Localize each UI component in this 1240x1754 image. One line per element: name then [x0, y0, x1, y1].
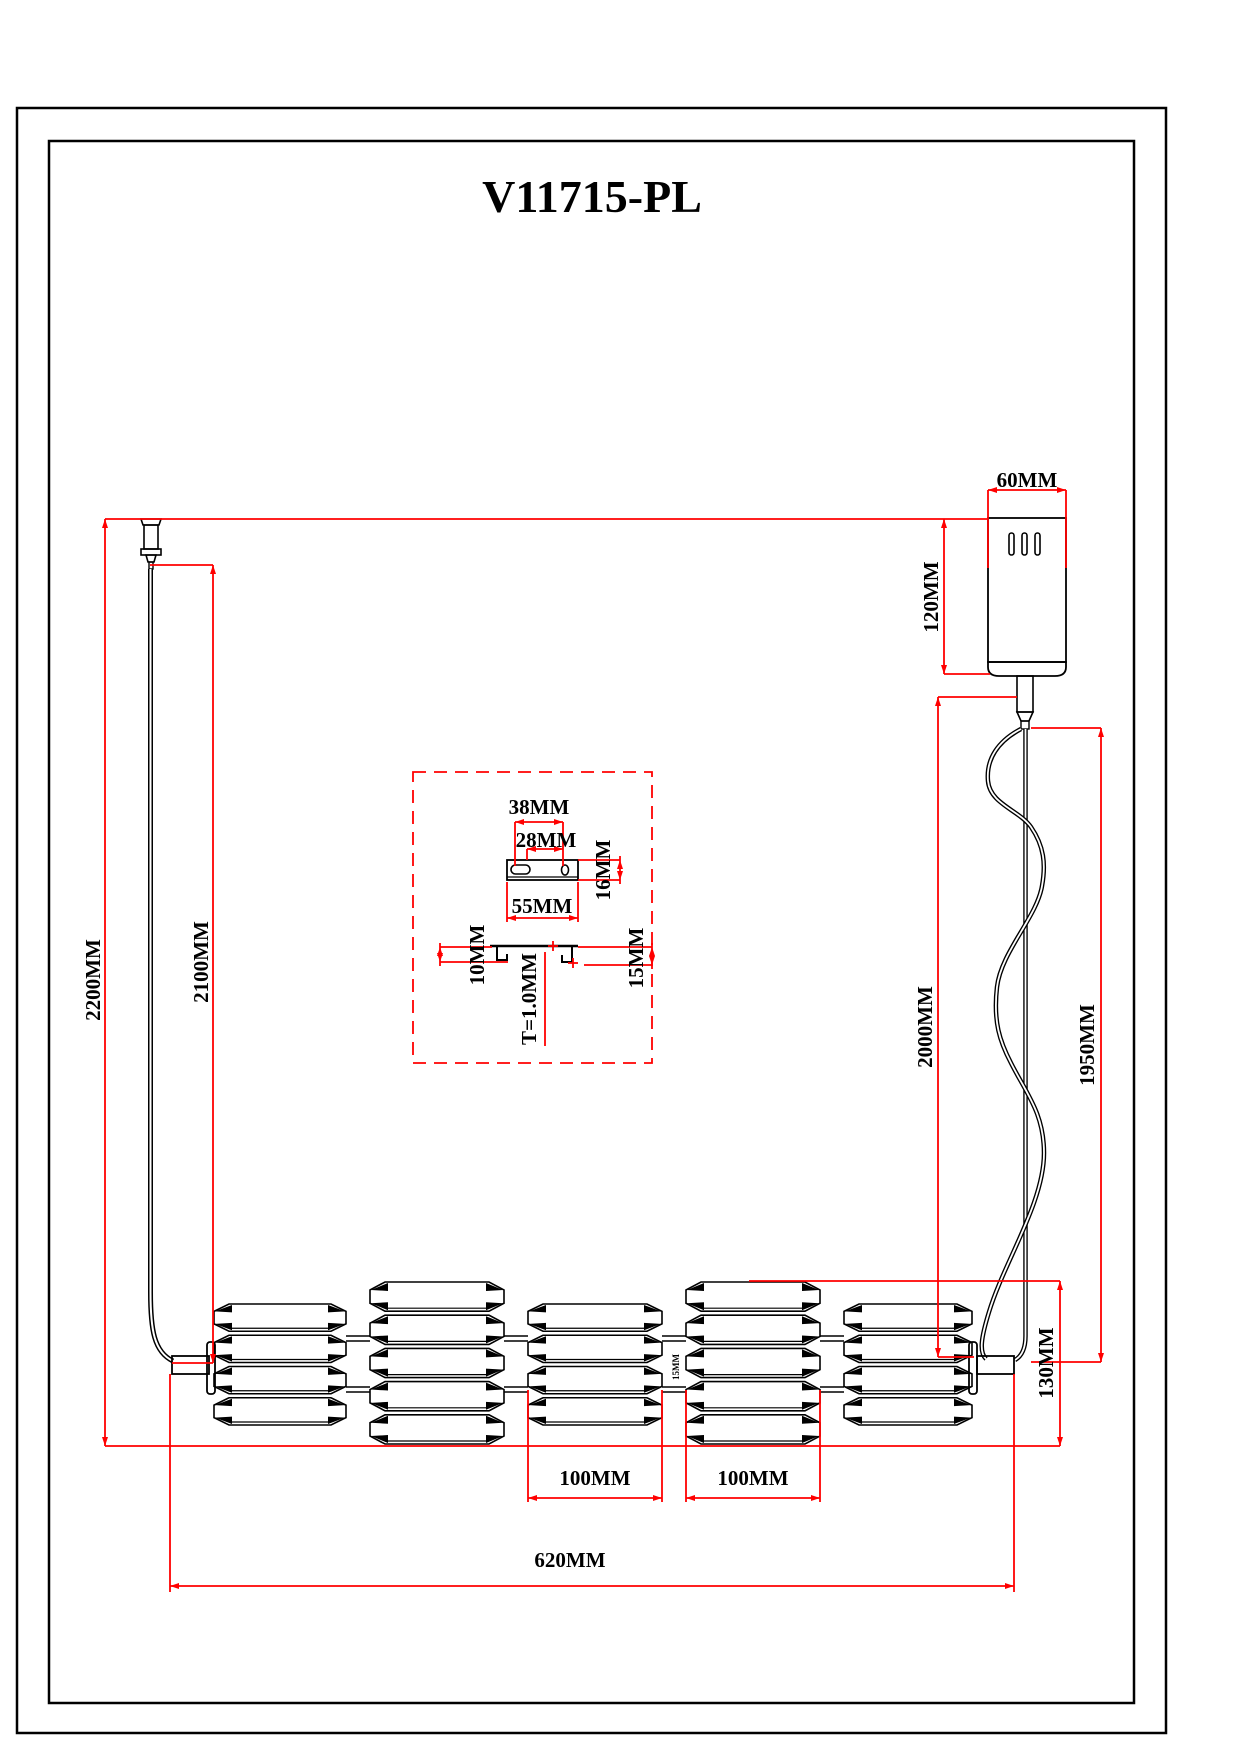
dimension-arrow — [554, 819, 563, 825]
fixture-black-geometry — [141, 518, 1066, 1444]
dimension-arrow — [437, 953, 443, 962]
canopy-vent-slot — [1035, 533, 1040, 555]
shade-facet — [844, 1367, 972, 1394]
technical-drawing: V11715-PL — [0, 0, 1240, 1754]
drawing-title: V11715-PL — [482, 171, 702, 222]
dim-shade-gap: 15MM — [671, 1354, 681, 1380]
dimension-arrow — [686, 1495, 695, 1501]
canopy-vent-slot — [1022, 533, 1027, 555]
dimension-arrow — [811, 1495, 820, 1501]
dimension-arrow — [941, 519, 947, 528]
shade-facet — [370, 1415, 504, 1444]
canopy-stem — [1017, 676, 1033, 712]
shade-facet — [528, 1304, 662, 1331]
dimension-arrow — [1057, 487, 1066, 493]
dim-bracket-hole-span: 28MM — [516, 828, 577, 852]
dimension-arrow — [617, 871, 623, 880]
shade-facet — [686, 1382, 820, 1411]
right-power-cord — [982, 729, 1044, 1359]
dimension-arrow — [935, 1348, 941, 1357]
dimension-lines — [105, 490, 1101, 1592]
dim-overall-drop: 2200MM — [81, 939, 105, 1021]
dimension-arrow — [170, 1583, 179, 1589]
left-ceiling-mount — [141, 519, 161, 569]
dim-fixture-height: 130MM — [1034, 1327, 1058, 1398]
shade-facet — [528, 1335, 662, 1362]
dimension-arrow — [617, 860, 623, 869]
dimension-arrow — [649, 956, 655, 965]
bracket-top-view — [507, 860, 578, 880]
shade-facet — [214, 1398, 346, 1425]
drawing-page: V11715-PL — [0, 0, 1240, 1754]
shade-facet — [686, 1282, 820, 1311]
dimension-arrow — [210, 565, 216, 574]
shade-facet — [686, 1348, 820, 1377]
left-suspension-wire — [151, 569, 174, 1361]
shade-facet — [214, 1304, 346, 1331]
canopy-vent-slot — [1009, 533, 1014, 555]
dimension-arrow — [935, 697, 941, 706]
dimension-arrow — [649, 947, 655, 956]
dim-wire-drop: 2100MM — [189, 921, 213, 1003]
dimension-arrow — [515, 819, 524, 825]
dim-bracket-slot-span: 38MM — [509, 795, 570, 819]
dim-shade3-width: 100MM — [559, 1466, 630, 1490]
dim-fixture-length: 620MM — [534, 1548, 605, 1572]
shade-facet — [370, 1348, 504, 1377]
dim-bracket-lip-right: 15MM — [624, 928, 648, 989]
dim-cable-right: 1950MM — [1075, 1004, 1099, 1086]
dimension-arrow — [102, 519, 108, 528]
dim-bracket-lip-left: 10MM — [465, 925, 489, 986]
dim-cable-left: 2000MM — [913, 986, 937, 1068]
dimension-labels: 60MM 120MM 2200MM 2100MM 2000MM 1950MM 1… — [81, 468, 1099, 1572]
right-end-plate — [969, 1342, 977, 1394]
shade-facet — [370, 1282, 504, 1311]
dimension-arrow — [1057, 1281, 1063, 1290]
crystal-shades — [214, 1282, 972, 1444]
dimension-arrow — [988, 487, 997, 493]
shade-facet — [370, 1315, 504, 1344]
bracket-hole — [562, 865, 569, 875]
dim-canopy-width: 60MM — [997, 468, 1058, 492]
bracket-slot — [511, 865, 530, 874]
shade-facet — [528, 1398, 662, 1425]
shade-facet — [214, 1367, 346, 1394]
shade-facet — [844, 1398, 972, 1425]
left-end-tube — [172, 1356, 209, 1374]
dim-bracket-length: 55MM — [512, 894, 573, 918]
dim-bracket-thickness: T=1.0MM — [517, 953, 541, 1045]
shade-facet — [686, 1315, 820, 1344]
right-end-tube — [977, 1356, 1014, 1374]
shade-facet — [686, 1415, 820, 1444]
dim-canopy-height: 120MM — [919, 561, 943, 632]
dim-bracket-depth: 16MM — [591, 840, 615, 901]
dimension-arrow — [102, 1437, 108, 1446]
dimension-arrow — [941, 665, 947, 674]
dimension-arrow — [1098, 1353, 1104, 1362]
right-steel-cable — [1015, 729, 1026, 1360]
shade-facet — [528, 1367, 662, 1394]
shade-facet — [844, 1304, 972, 1331]
dimension-arrow — [1005, 1583, 1014, 1589]
dimension-arrow — [528, 1495, 537, 1501]
shade-facet — [370, 1382, 504, 1411]
shade-facet — [214, 1335, 346, 1362]
dimension-arrow — [1098, 728, 1104, 737]
dimension-arrow — [1057, 1437, 1063, 1446]
dimension-arrowheads — [102, 487, 1104, 1589]
dim-shade4-width: 100MM — [717, 1466, 788, 1490]
dimension-arrow — [653, 1495, 662, 1501]
fixture-bar-ends — [172, 1342, 1014, 1394]
shade-facet — [844, 1335, 972, 1362]
